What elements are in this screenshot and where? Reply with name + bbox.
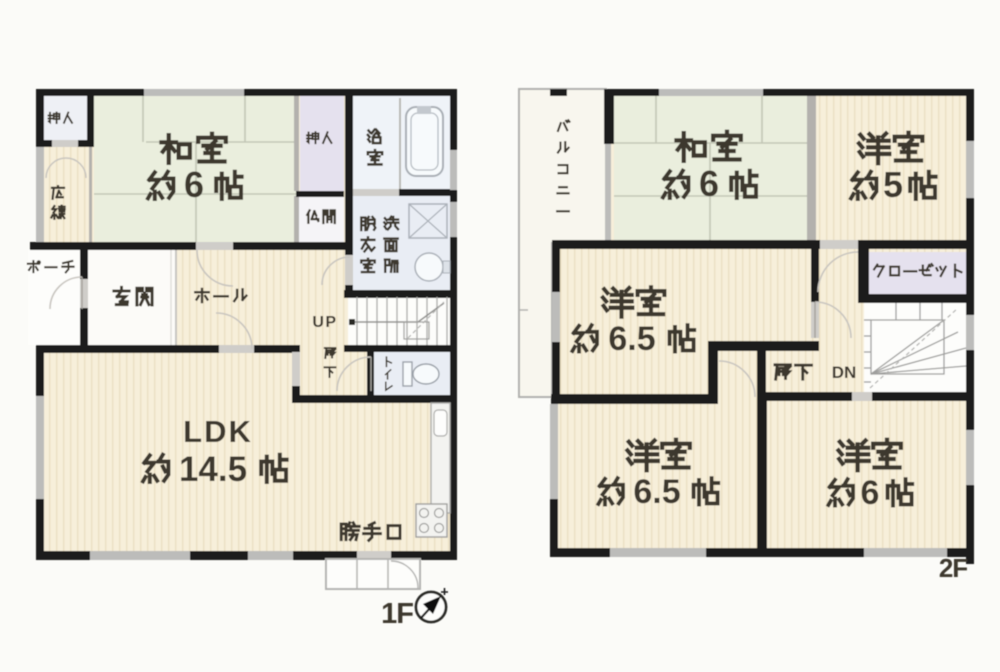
svg-text:5: 5 (883, 164, 903, 205)
svg-text:6: 6 (861, 474, 880, 512)
svg-text:6: 6 (184, 164, 204, 205)
svg-text:6.5: 6.5 (608, 320, 655, 358)
svg-text:14.5: 14.5 (179, 450, 247, 489)
svg-text:2F: 2F (939, 553, 967, 583)
svg-text:DN: DN (832, 363, 857, 382)
svg-text:UP: UP (312, 314, 337, 331)
svg-text:1F: 1F (381, 598, 413, 630)
svg-text:LDK: LDK (183, 414, 253, 449)
svg-text:6: 6 (699, 163, 719, 204)
svg-text:6.5: 6.5 (633, 473, 680, 511)
